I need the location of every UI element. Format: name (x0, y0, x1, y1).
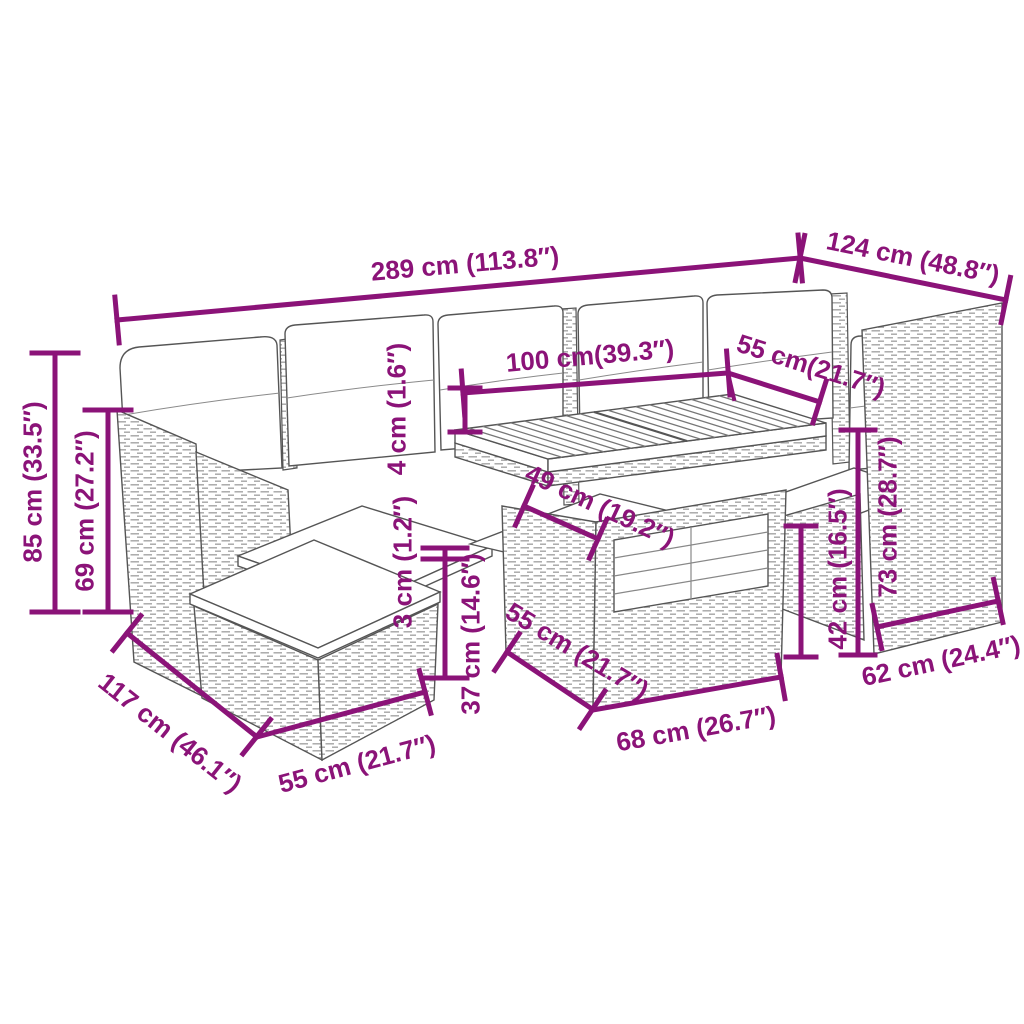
dim-line-armchair-seat-height (786, 526, 816, 657)
dim-line-table-top-thickness (450, 388, 480, 432)
dim-label-backrest-height: 69 cm (27.2″) (70, 430, 101, 591)
dim-label-table-top-thickness: 4 cm (1.6″) (382, 343, 413, 475)
dim-label-seat-height: 37 cm (14.6″) (456, 553, 487, 714)
dim-label-armchair-seat-height: 42 cm (16.5″) (823, 488, 854, 649)
dim-label-table-height: 73 cm (28.7″) (873, 436, 904, 597)
dimension-lines (0, 0, 1024, 1024)
dim-label-cushion-thickness: 3 cm (1.2″) (388, 496, 419, 628)
dim-label-total-height: 85 cm (33.5″) (18, 401, 49, 562)
diagram-canvas: 289 cm (113.8″) 124 cm (48.8″) 85 cm (33… (0, 0, 1024, 1024)
